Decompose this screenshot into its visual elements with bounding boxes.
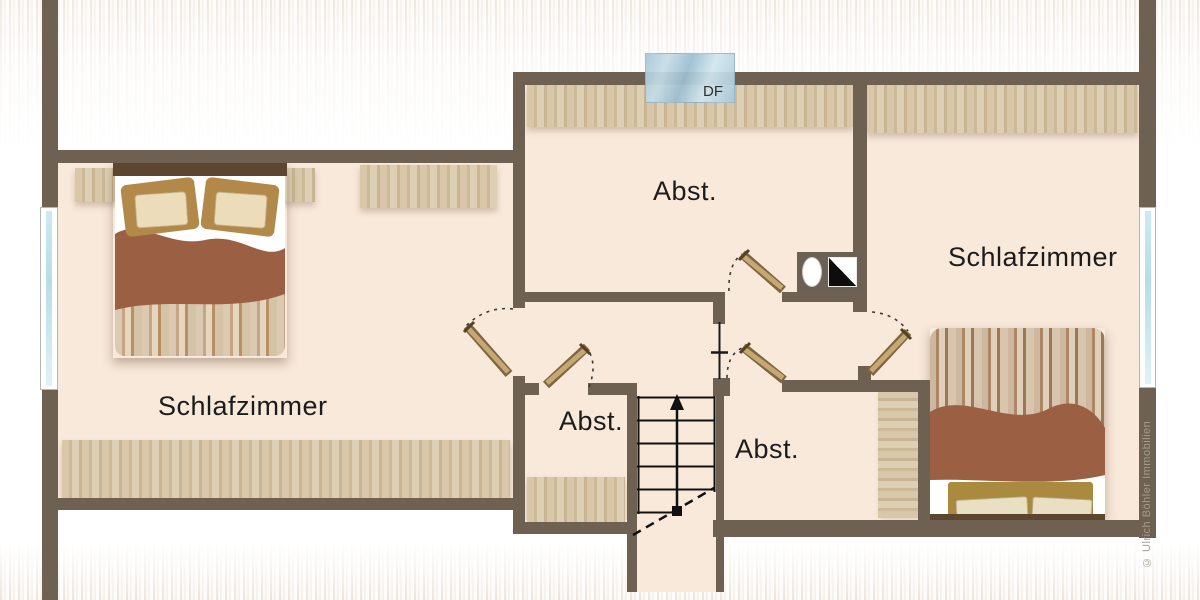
door-leaf-storage-lower-left [546,344,590,385]
door-arc-bedroom-right [872,312,908,331]
door-leaf-bedroom-left [464,322,509,374]
room-label-storage-top: Abst. [653,176,717,207]
floorplan-canvas: DF [0,0,1200,600]
copyright-text: © Ulrich Böhler Immobilien [1141,398,1153,568]
door-leaf-storage-lower-right [740,343,784,380]
stair-railing [711,322,728,379]
room-label-bedroom-left: Schlafzimmer [158,391,328,422]
door-leaf-storage-top [739,250,783,290]
plan-annotations [0,0,1200,600]
door-swing-arcs [466,254,908,387]
room-label-storage-lower-right: Abst. [735,434,799,465]
room-label-storage-lower-left: Abst. [559,406,623,437]
stair-direction-arrow [670,394,684,516]
door-leaves [464,250,911,385]
door-leaf-bedroom-right [870,329,911,373]
room-label-bedroom-right: Schlafzimmer [948,242,1118,273]
